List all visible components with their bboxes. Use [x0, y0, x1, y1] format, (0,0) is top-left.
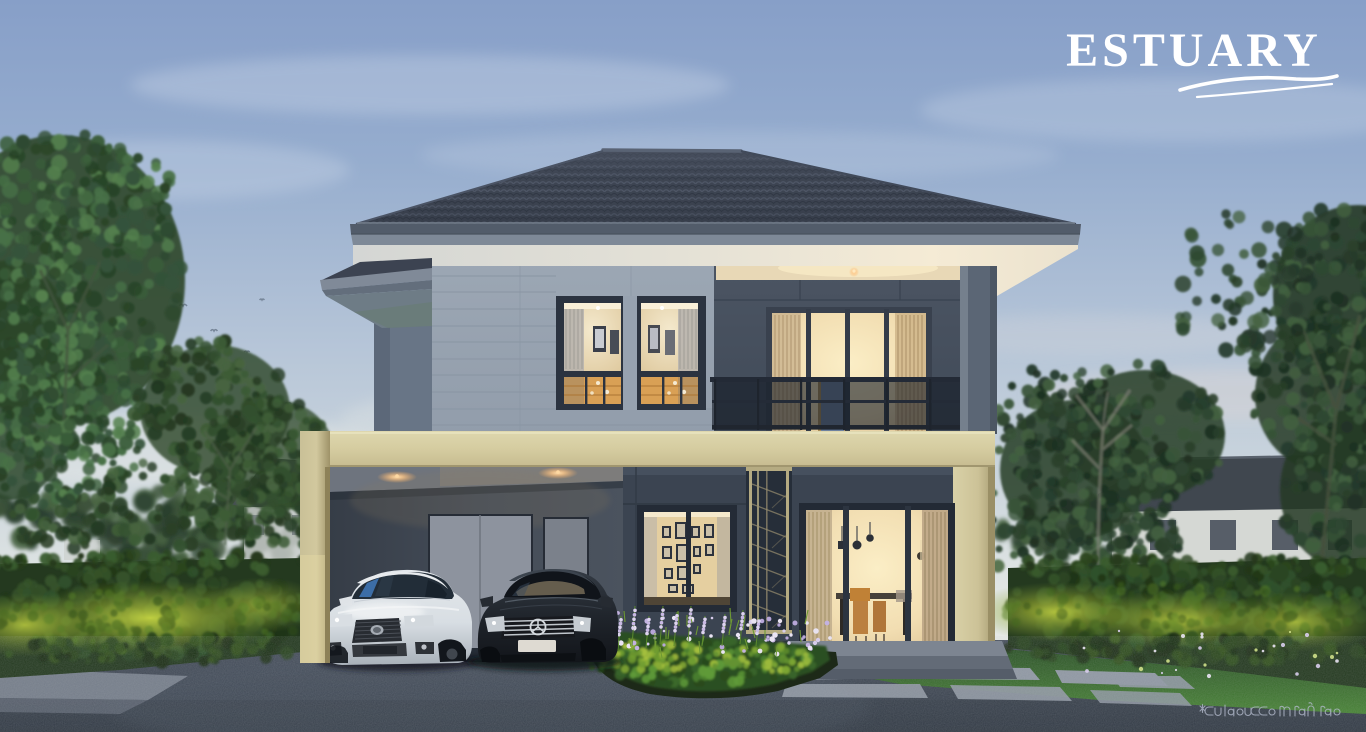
svg-text:ESTUARY: ESTUARY: [1066, 24, 1322, 77]
